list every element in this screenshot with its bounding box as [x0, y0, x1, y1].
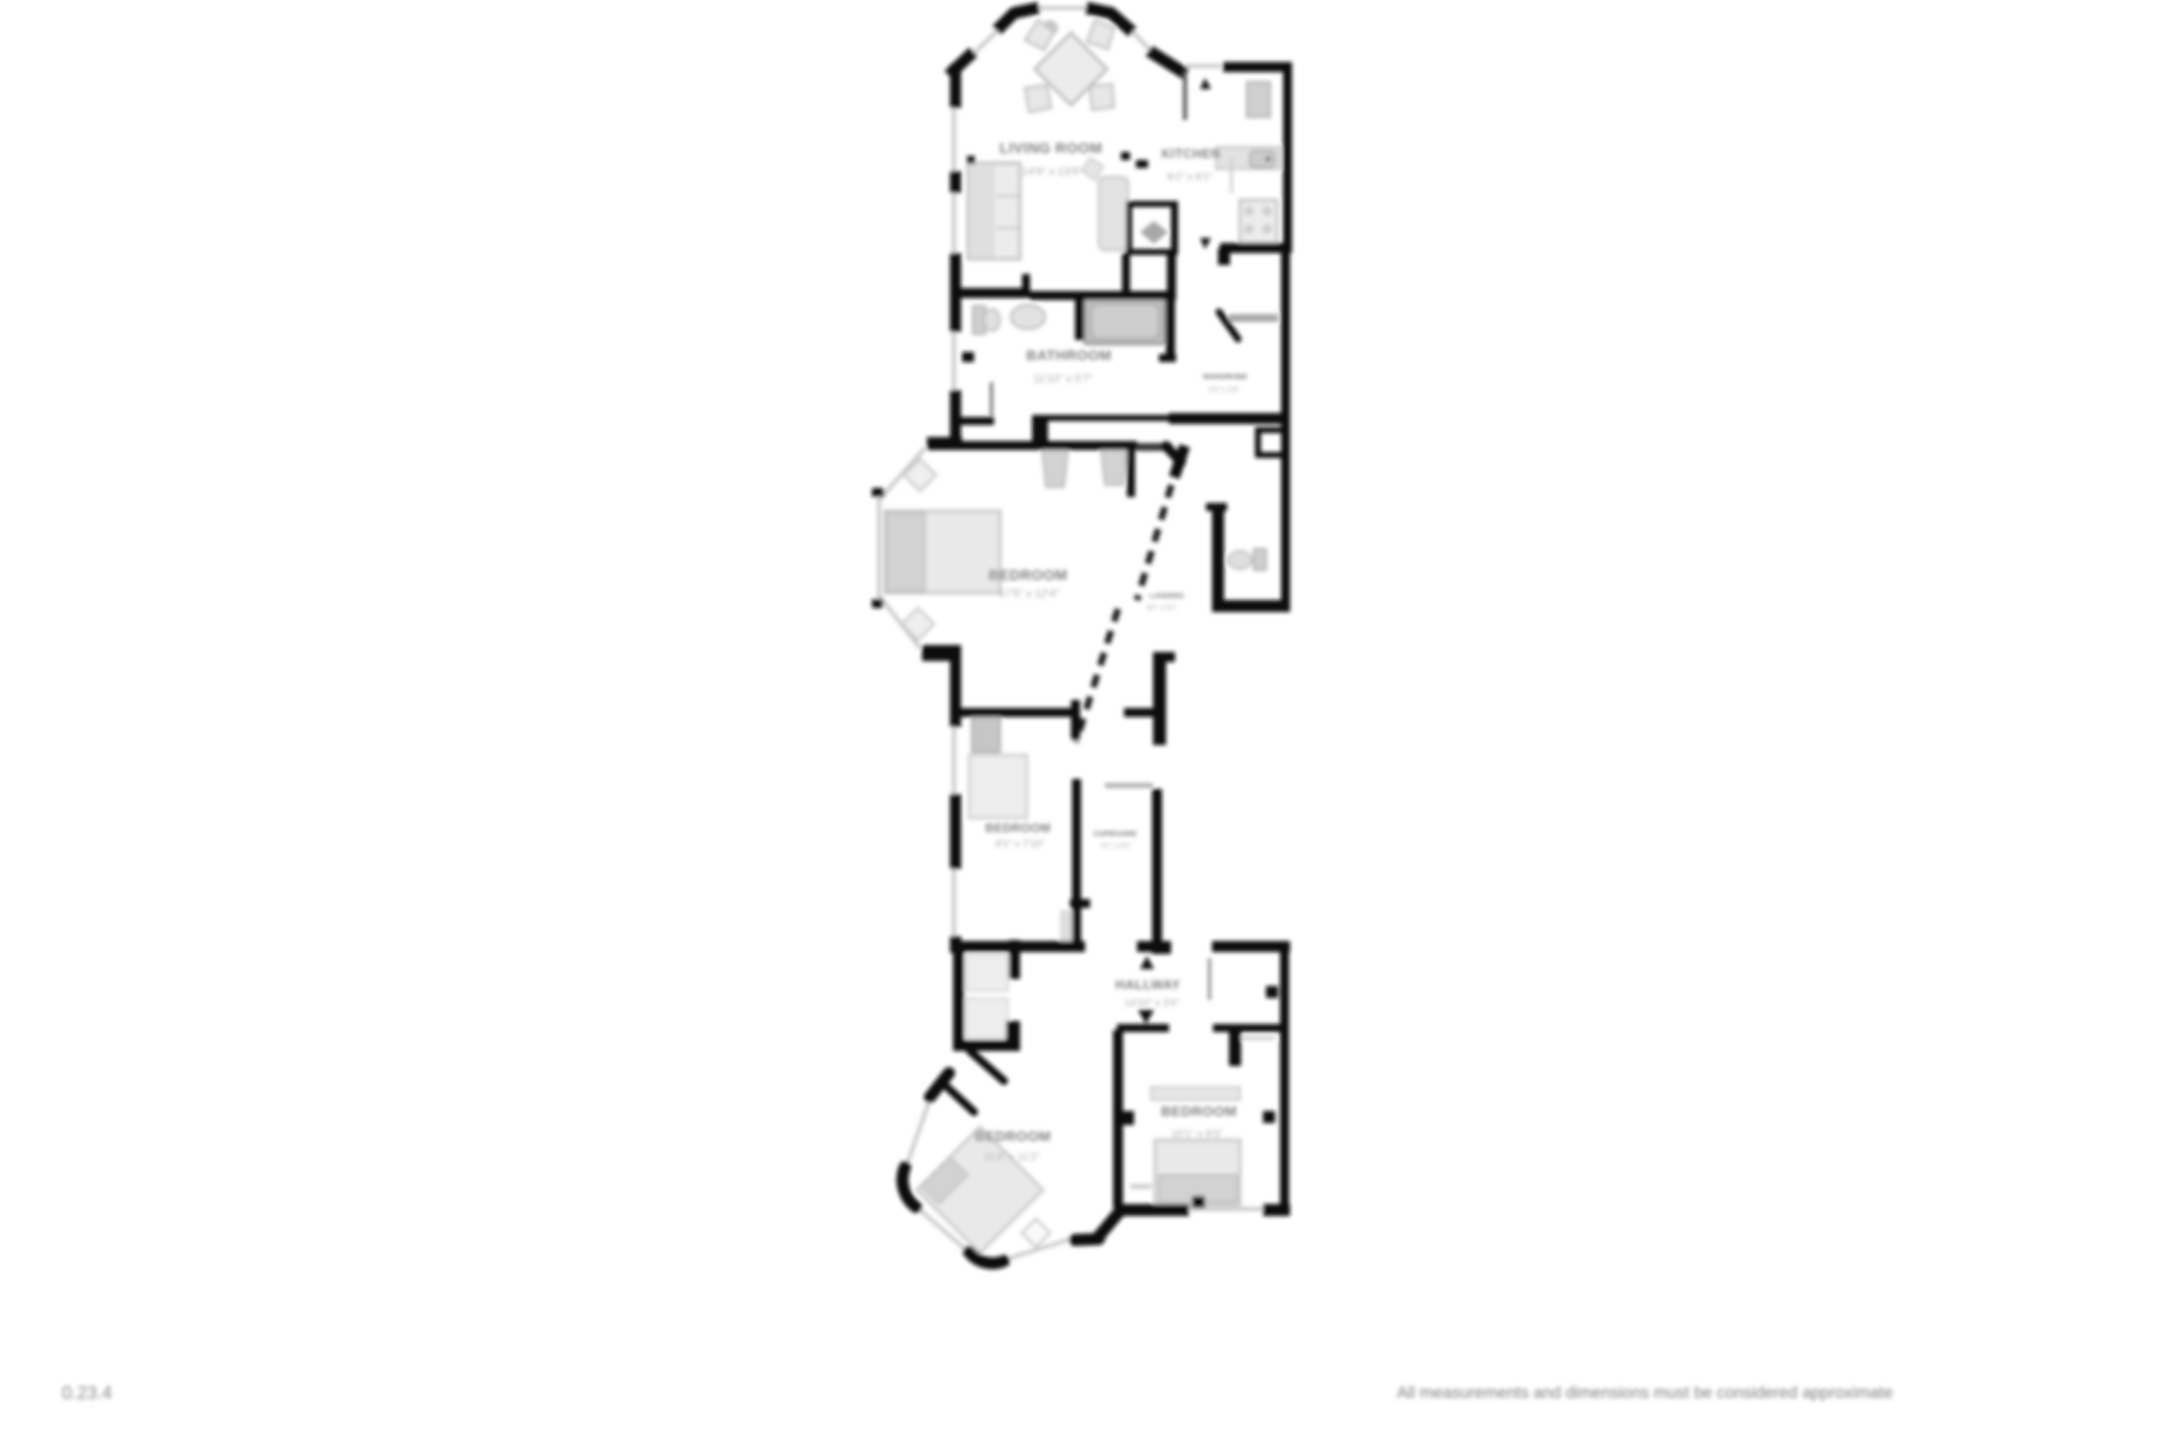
- svg-text:17'5" x 12'4": 17'5" x 12'4": [999, 588, 1059, 600]
- svg-text:HALLWAY: HALLWAY: [1115, 977, 1180, 992]
- svg-text:9'2" x 8'1": 9'2" x 8'1": [1167, 171, 1213, 183]
- svg-text:KITCHEN: KITCHEN: [1161, 147, 1220, 161]
- svg-text:BEDROOM: BEDROOM: [988, 568, 1067, 584]
- svg-text:WARDROBE: WARDROBE: [1203, 372, 1248, 381]
- svg-text:0.23.4: 0.23.4: [62, 1383, 112, 1403]
- svg-text:LIVING ROOM: LIVING ROOM: [1000, 141, 1103, 157]
- svg-text:14'9" x 13'5": 14'9" x 13'5": [1022, 166, 1082, 178]
- svg-text:BEDROOM: BEDROOM: [1161, 1103, 1237, 1119]
- svg-text:All measurements and dimension: All measurements and dimensions must be …: [1397, 1384, 1893, 1402]
- svg-text:10'1" x 9'3": 10'1" x 9'3": [1171, 1128, 1223, 1140]
- svg-text:11'4" x 11'2": 11'4" x 11'2": [984, 1151, 1040, 1163]
- svg-text:LANDING: LANDING: [1150, 591, 1184, 600]
- svg-text:CUPBOARD: CUPBOARD: [1093, 829, 1137, 838]
- svg-text:BEDROOM: BEDROOM: [985, 821, 1050, 835]
- svg-text:BEDROOM: BEDROOM: [975, 1128, 1051, 1144]
- svg-text:3'2" x 2'8": 3'2" x 2'8": [1209, 387, 1240, 394]
- svg-text:4'1" x 3'2": 4'1" x 3'2": [1101, 843, 1132, 850]
- svg-text:BATHROOM: BATHROOM: [1026, 347, 1111, 363]
- svg-text:11'10" x 5'7": 11'10" x 5'7": [1033, 373, 1093, 385]
- svg-text:9'2" x 5'1": 9'2" x 5'1": [1147, 605, 1178, 612]
- svg-text:14'10" x 3'4": 14'10" x 3'4": [1125, 998, 1180, 1009]
- svg-text:9'1" x 7'10": 9'1" x 7'10": [995, 839, 1045, 850]
